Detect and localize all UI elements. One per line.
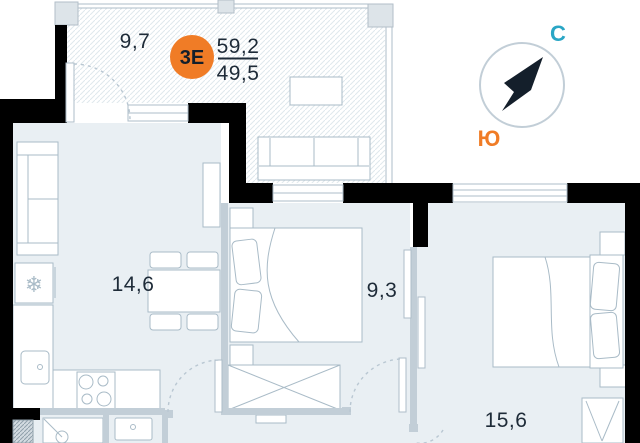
- wall-facade-mid: [343, 183, 453, 203]
- wall-bedroom-small-top: [229, 183, 273, 203]
- wall-facade-right: [567, 183, 640, 203]
- vent-shaft: [13, 420, 33, 443]
- bedroom-small-door-leaf: [399, 358, 406, 412]
- wall-top-left-block: [0, 99, 67, 123]
- partition-bath-divider: [103, 415, 109, 443]
- wall-left: [0, 99, 13, 443]
- total-area-value: 59,2: [217, 35, 260, 58]
- bedroom-large-area-label: 15,6: [485, 409, 528, 432]
- balcony-window: [128, 103, 188, 123]
- balcony-area-label: 9,7: [120, 30, 151, 53]
- compass-south-label: Ю: [478, 126, 501, 151]
- door-hinge-block: [409, 424, 418, 432]
- balcony-table: [290, 77, 342, 105]
- living-area-value: 49,5: [217, 62, 260, 85]
- wall-right: [625, 203, 640, 443]
- sliding-door-leaf: [404, 250, 411, 318]
- bedroom-small-window: [273, 183, 343, 203]
- partition-kitchen-bath: [40, 408, 165, 415]
- nightstand: [600, 232, 625, 255]
- balcony-door-opening: [67, 103, 128, 123]
- balcony-sofa: [258, 137, 370, 180]
- floor-plan: ❄: [0, 0, 640, 443]
- armchair: [582, 398, 623, 443]
- compass-north-label: С: [550, 21, 566, 46]
- chair: [150, 314, 181, 330]
- snowflake-icon: ❄: [25, 273, 43, 298]
- shelf: [256, 415, 286, 423]
- double-bed: [230, 228, 362, 342]
- kitchen-sink: [21, 351, 49, 384]
- dining-table: [148, 270, 220, 312]
- fridge: ❄: [15, 263, 55, 303]
- balcony-door-leaf: [66, 63, 74, 122]
- chair: [187, 252, 218, 268]
- wall-stub: [413, 203, 428, 247]
- facade-pillar: [368, 4, 393, 27]
- pillow: [590, 262, 620, 311]
- bedroom-large-window: [453, 183, 567, 203]
- sofa: [17, 142, 58, 255]
- nightstand: [230, 208, 253, 228]
- facade-pillar: [55, 2, 78, 25]
- wall-balcony-left: [55, 25, 67, 103]
- unit-type-label: 3Е: [180, 47, 204, 69]
- pillow: [231, 239, 261, 286]
- stove: [77, 372, 115, 410]
- bathroom-sink: [115, 418, 152, 440]
- living-door-leaf: [215, 360, 222, 412]
- pillow: [590, 312, 620, 359]
- chair: [150, 252, 181, 268]
- sliding-door-leaf: [418, 297, 425, 368]
- chair: [187, 314, 218, 330]
- facade-pillar: [218, 0, 234, 13]
- wall-vertical-mid: [229, 103, 246, 183]
- partition-bedroom-hall: [228, 408, 350, 415]
- pillow: [231, 289, 262, 334]
- nightstand: [230, 345, 253, 365]
- wardrobe: [228, 365, 340, 410]
- shower-tray: [43, 418, 103, 443]
- double-bed: [493, 255, 623, 368]
- compass: С Ю: [478, 21, 566, 151]
- wall-bottom-left: [13, 408, 40, 420]
- blanket: [493, 257, 559, 367]
- bedroom-small-area-label: 9,3: [367, 279, 398, 302]
- kitchen-living-area-label: 14,6: [112, 273, 155, 296]
- floor-plan-page: ❄: [0, 0, 640, 443]
- tv-unit: [203, 163, 220, 227]
- bathroom-fixtures: [43, 418, 152, 443]
